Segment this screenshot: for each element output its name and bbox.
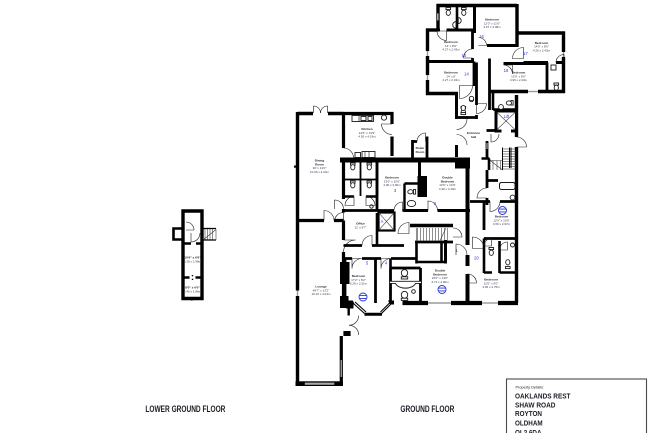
svg-text:14: 14 [464,72,469,77]
svg-text:18: 18 [504,68,509,73]
svg-text:4.00 x 3.00m: 4.00 x 3.00m [383,183,401,187]
svg-text:Property Details:: Property Details: [516,385,545,390]
svg-text:3.28 x 1.98m: 3.28 x 1.98m [184,260,202,264]
svg-text:4.71 x 4.00m: 4.71 x 4.00m [431,280,449,284]
svg-text:4.27 x 2.43m: 4.27 x 2.43m [442,78,460,82]
svg-text:Room: Room [416,150,425,154]
svg-text:OAKLANDS REST: OAKLANDS REST [515,394,571,401]
svg-text:hall: hall [471,135,476,139]
svg-text:12' x 9'7": 12' x 9'7" [354,225,366,229]
svg-text:3.96 x 2.43m: 3.96 x 2.43m [510,78,528,82]
svg-text:A: A [381,219,384,224]
svg-text:10.06 x 4.04m: 10.06 x 4.04m [310,170,330,174]
svg-text:3.66 x 2.97m: 3.66 x 2.97m [493,222,511,226]
svg-text:3.67 x 3.38m: 3.67 x 3.38m [483,25,501,29]
svg-text:Lift: Lift [504,114,510,119]
svg-text:4.50 x 4.19m: 4.50 x 4.19m [358,135,376,139]
svg-text:3.66 x 2.75m: 3.66 x 2.75m [482,285,500,289]
svg-text:5.28 x 2.51m: 5.28 x 2.51m [350,282,368,286]
svg-text:20: 20 [474,256,479,261]
svg-text:ROYTON: ROYTON [515,411,542,418]
svg-text:SHAW ROAD: SHAW ROAD [515,403,556,410]
svg-text:17: 17 [523,51,528,56]
svg-text:10.16 x 4.04m: 10.16 x 4.04m [311,292,331,296]
svg-text:4.26 x 2.43m: 4.26 x 2.43m [533,48,551,52]
svg-text:OLDHAM: OLDHAM [515,421,543,428]
svg-text:4.27 x 2.43m: 4.27 x 2.43m [442,48,460,52]
svg-text:2.46 x 1.86m: 2.46 x 1.86m [184,290,202,294]
svg-text:GROUND FLOOR: GROUND FLOOR [400,404,454,414]
svg-text:LOWER GROUND FLOOR: LOWER GROUND FLOOR [145,404,225,414]
svg-text:4.30 x 4.19m: 4.30 x 4.19m [439,187,457,191]
